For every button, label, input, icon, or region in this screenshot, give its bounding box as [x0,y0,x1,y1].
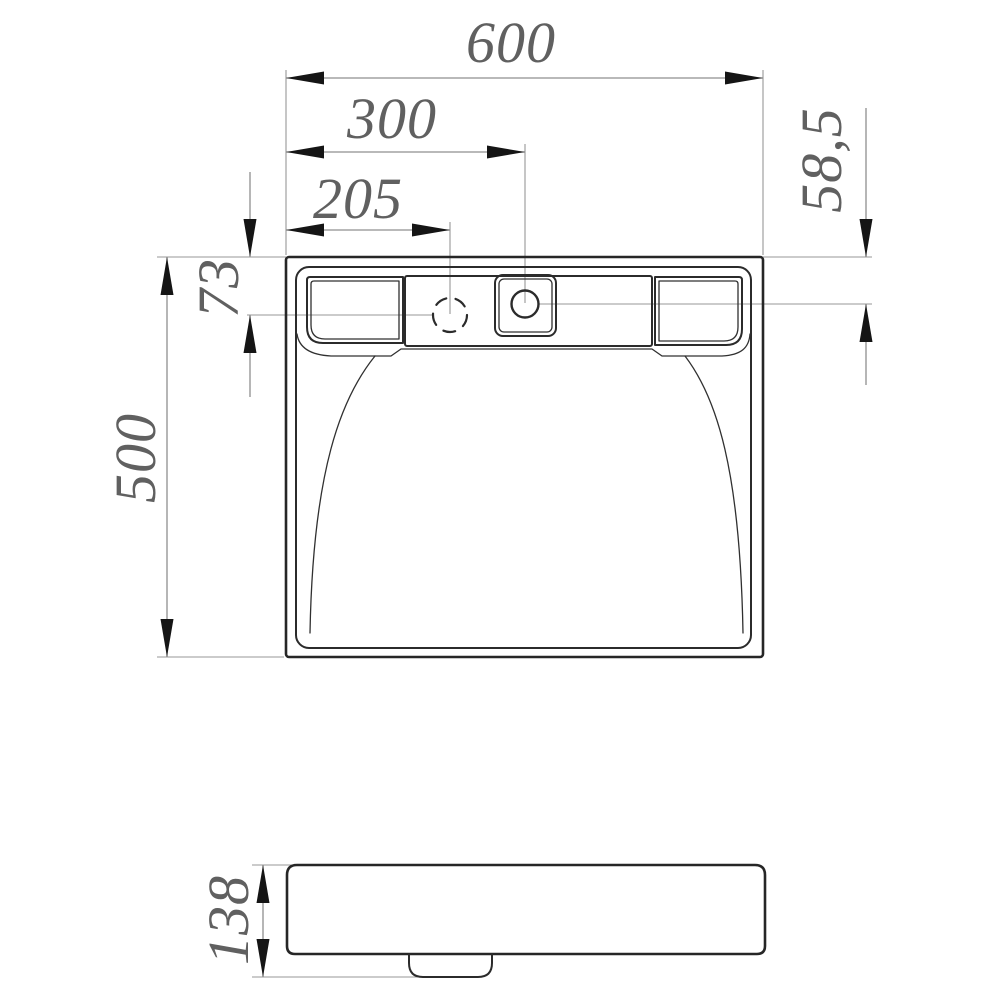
dim-profile-height-label: 138 [196,875,261,965]
dim-main-hole-offset-y: 58,5 [539,107,873,385]
arrowhead-right [725,72,763,85]
basin-inner-rim [296,267,751,648]
arrowhead-up [161,257,174,295]
dim-overall-width-label: 600 [466,10,556,75]
dim-second-hole-offset-x-label: 205 [313,166,403,231]
dim-main-hole-offset-y-label: 58,5 [789,107,854,213]
dim-overall-depth-label: 500 [103,413,168,503]
arrowhead-down [860,219,873,257]
arrowhead-right [412,224,450,237]
top-view [286,257,763,657]
deck-right-ledge-outer [655,277,742,345]
drain-boss [409,954,492,977]
bowl-right-wall-curve [685,356,743,633]
side-view [287,865,765,977]
bowl-left-wall-curve [310,356,375,633]
arrowhead-down [161,619,174,657]
dim-profile-height: 138 [196,865,424,977]
deck-right-ledge-inner [659,281,738,341]
drawing-canvas: 600 300 205 58,5 73 [0,0,1000,1000]
arrowhead-down [244,219,257,257]
dim-main-hole-offset-x-label: 300 [346,86,437,151]
deck-left-ledge-outer [307,277,403,343]
deck-left-ledge-inner [311,281,399,339]
arrowhead-up [244,315,257,353]
profile-body [287,865,765,954]
arrowhead-up [860,304,873,342]
arrowhead-right [487,146,525,159]
dim-second-hole-offset-y-label: 73 [186,258,251,318]
arrowhead-left [286,146,324,159]
sink-technical-drawing: 600 300 205 58,5 73 [0,0,1000,1000]
arrowhead-left [286,72,324,85]
